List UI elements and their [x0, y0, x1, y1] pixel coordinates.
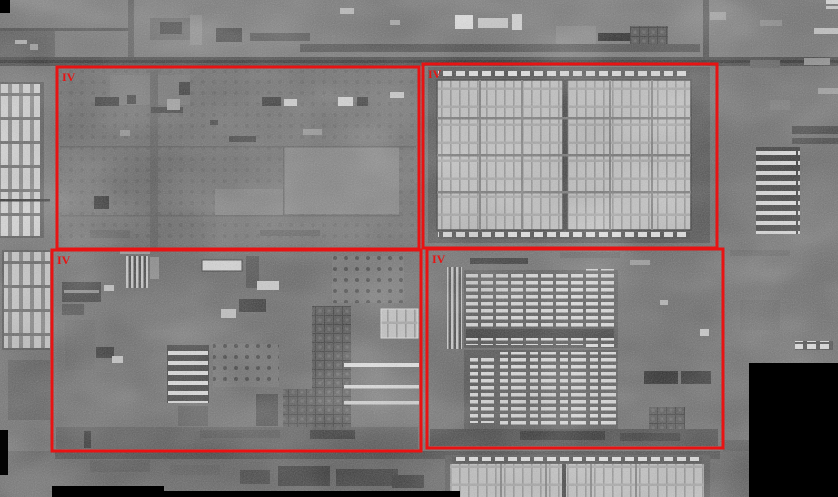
region-label-1: IV: [62, 70, 76, 84]
region-label-3: IV: [57, 253, 71, 267]
region-label-4: IV: [432, 252, 446, 266]
satellite-mosaic-image: IVIVIVIV: [0, 0, 838, 497]
region-label-2: IV: [428, 67, 442, 81]
satellite-figure: IVIVIVIV: [0, 0, 838, 497]
